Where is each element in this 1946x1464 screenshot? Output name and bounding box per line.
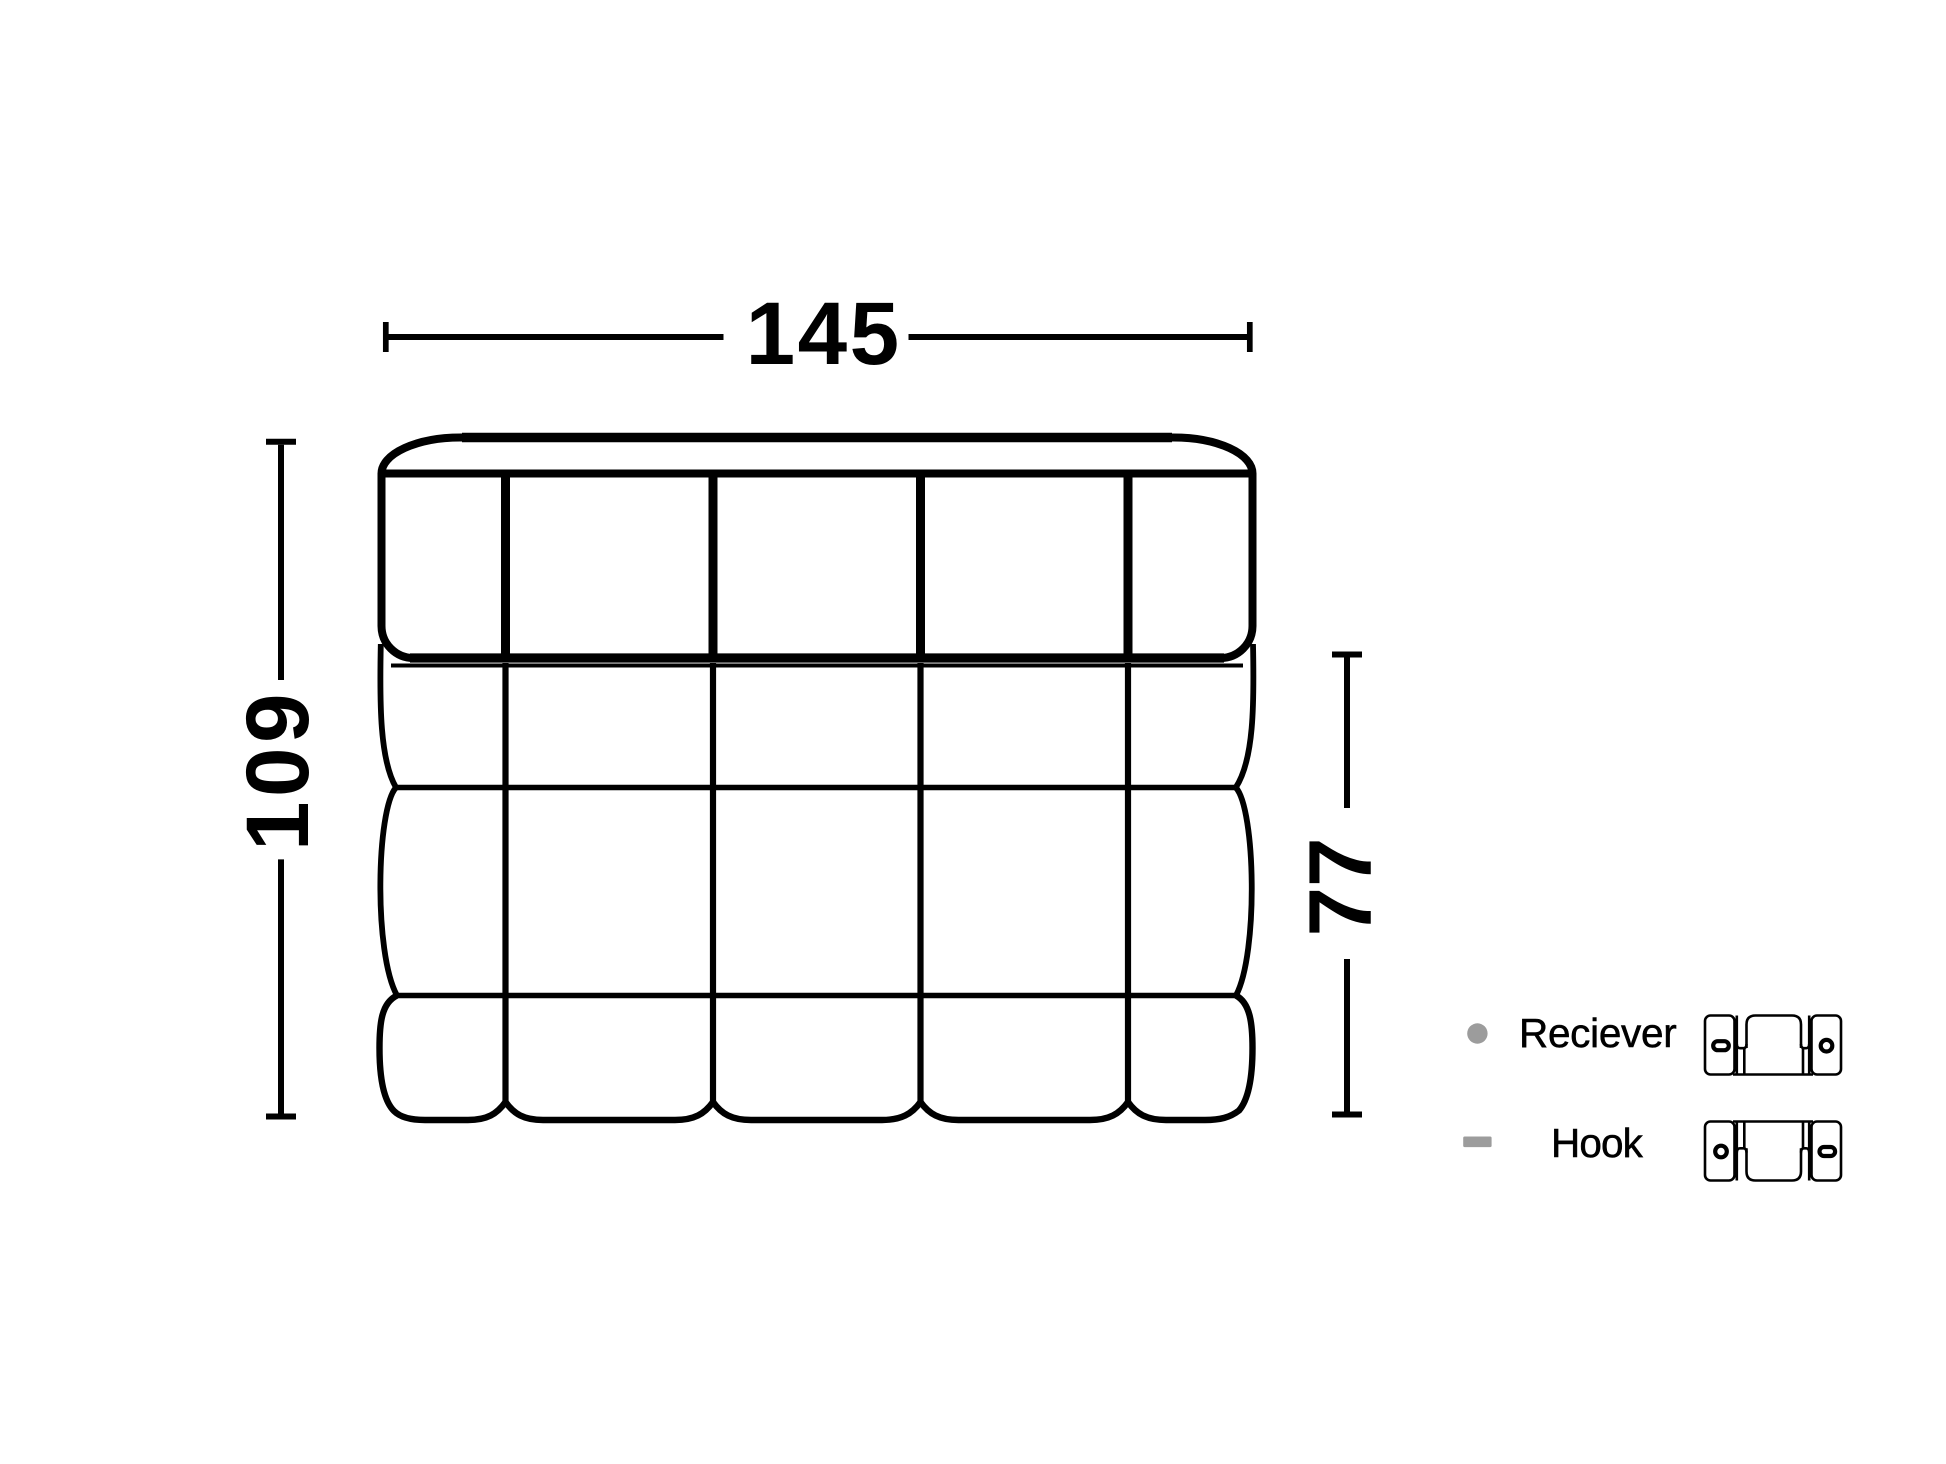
- svg-text:Reciever: Reciever: [1519, 1010, 1676, 1056]
- svg-text:109: 109: [227, 689, 327, 851]
- svg-text:Hook: Hook: [1551, 1120, 1644, 1166]
- svg-text:77: 77: [1290, 838, 1390, 937]
- svg-text:145: 145: [746, 283, 902, 383]
